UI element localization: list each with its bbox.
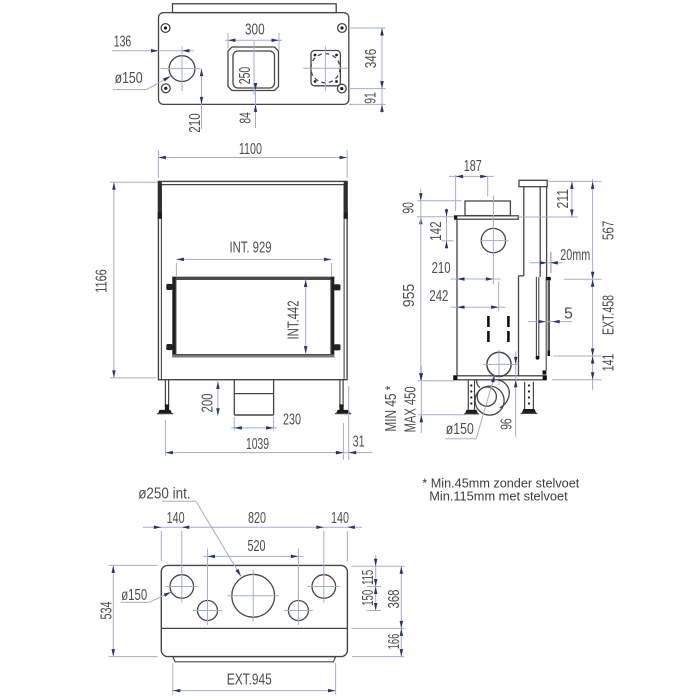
svg-text:136: 136 — [114, 33, 132, 50]
svg-text:150: 150 — [360, 590, 377, 606]
svg-text:91: 91 — [362, 92, 379, 103]
svg-text:820: 820 — [248, 510, 266, 527]
svg-text:1039: 1039 — [246, 436, 269, 453]
svg-text:ø150: ø150 — [121, 587, 147, 604]
svg-text:187: 187 — [464, 158, 482, 175]
svg-text:EXT.945: EXT.945 — [227, 671, 272, 688]
svg-text:200: 200 — [200, 393, 217, 412]
svg-text:142: 142 — [428, 221, 445, 241]
svg-text:140: 140 — [331, 510, 349, 527]
svg-text:ø250 int.: ø250 int. — [138, 486, 191, 503]
svg-text:5: 5 — [564, 305, 573, 322]
svg-text:31: 31 — [353, 434, 365, 451]
svg-text:567: 567 — [600, 221, 617, 241]
svg-text:368: 368 — [386, 589, 403, 608]
svg-text:230: 230 — [283, 411, 301, 428]
svg-text:MIN 45 *: MIN 45 * — [383, 386, 400, 432]
svg-text:20mm: 20mm — [560, 247, 590, 264]
svg-text:1100: 1100 — [239, 141, 262, 158]
svg-text:140: 140 — [167, 510, 185, 527]
svg-text:141: 141 — [600, 354, 617, 372]
svg-text:115: 115 — [360, 570, 377, 585]
svg-text:955: 955 — [401, 284, 418, 308]
svg-text:534: 534 — [99, 601, 116, 619]
svg-text:EXT.458: EXT.458 — [600, 295, 617, 335]
svg-text:211: 211 — [555, 189, 572, 209]
svg-text:1166: 1166 — [93, 269, 110, 293]
svg-text:96: 96 — [499, 418, 516, 429]
svg-text:90: 90 — [401, 202, 418, 213]
svg-text:250: 250 — [237, 67, 254, 85]
svg-text:ø150: ø150 — [115, 70, 143, 87]
svg-text:210: 210 — [432, 260, 451, 277]
svg-text:ø150: ø150 — [446, 421, 474, 438]
svg-text:242: 242 — [429, 288, 448, 305]
svg-text:Min.115mm met stelvoet: Min.115mm met stelvoet — [429, 489, 568, 504]
svg-text:166: 166 — [386, 634, 403, 650]
svg-text:210: 210 — [187, 113, 204, 133]
svg-text:MAX 450: MAX 450 — [402, 386, 419, 432]
svg-text:84: 84 — [237, 112, 254, 123]
svg-text:INT.442: INT.442 — [285, 300, 302, 339]
svg-text:520: 520 — [248, 538, 266, 555]
svg-text:INT. 929: INT. 929 — [230, 239, 272, 256]
svg-text:346: 346 — [363, 49, 380, 69]
svg-text:300: 300 — [245, 22, 265, 39]
